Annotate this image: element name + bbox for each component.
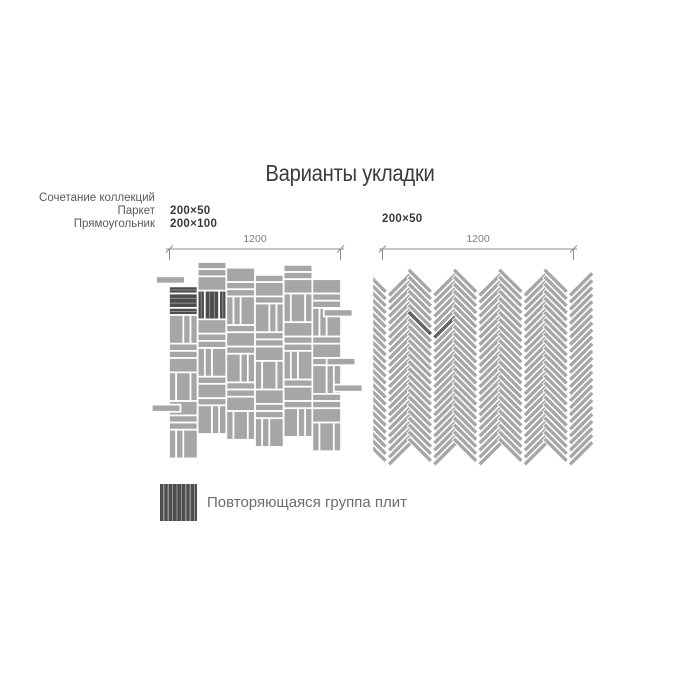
diagram-basketweave	[169, 262, 341, 463]
note-line-collections: Сочетание коллекций	[18, 192, 155, 205]
dimension-left: 1200	[169, 233, 341, 261]
layout-options-figure: Варианты укладки Сочетание коллекций Пар…	[0, 0, 700, 700]
legend-swatch	[160, 484, 197, 521]
collections-note: Сочетание коллекций Паркет Прямоугольник	[18, 192, 155, 231]
note-line-parquet: Паркет	[18, 205, 155, 218]
dimension-right-line	[382, 245, 574, 261]
left-tile-sizes: 200×50 200×100	[170, 205, 217, 231]
page-title: Варианты укладки	[42, 160, 658, 187]
dimension-left-line	[169, 245, 341, 261]
dimension-right: 1200	[382, 233, 574, 261]
diagram-herringbone	[382, 268, 574, 466]
dimension-right-label: 1200	[382, 233, 574, 245]
dimension-left-label: 1200	[169, 233, 341, 245]
note-line-rectangle: Прямоугольник	[18, 218, 155, 231]
legend-label: Повторяющаяся группа плит	[207, 494, 407, 511]
left-tile-size-rect: 200×100	[170, 218, 217, 231]
left-tile-size-strip: 200×50	[170, 205, 217, 218]
right-tile-size: 200×50	[382, 213, 423, 225]
